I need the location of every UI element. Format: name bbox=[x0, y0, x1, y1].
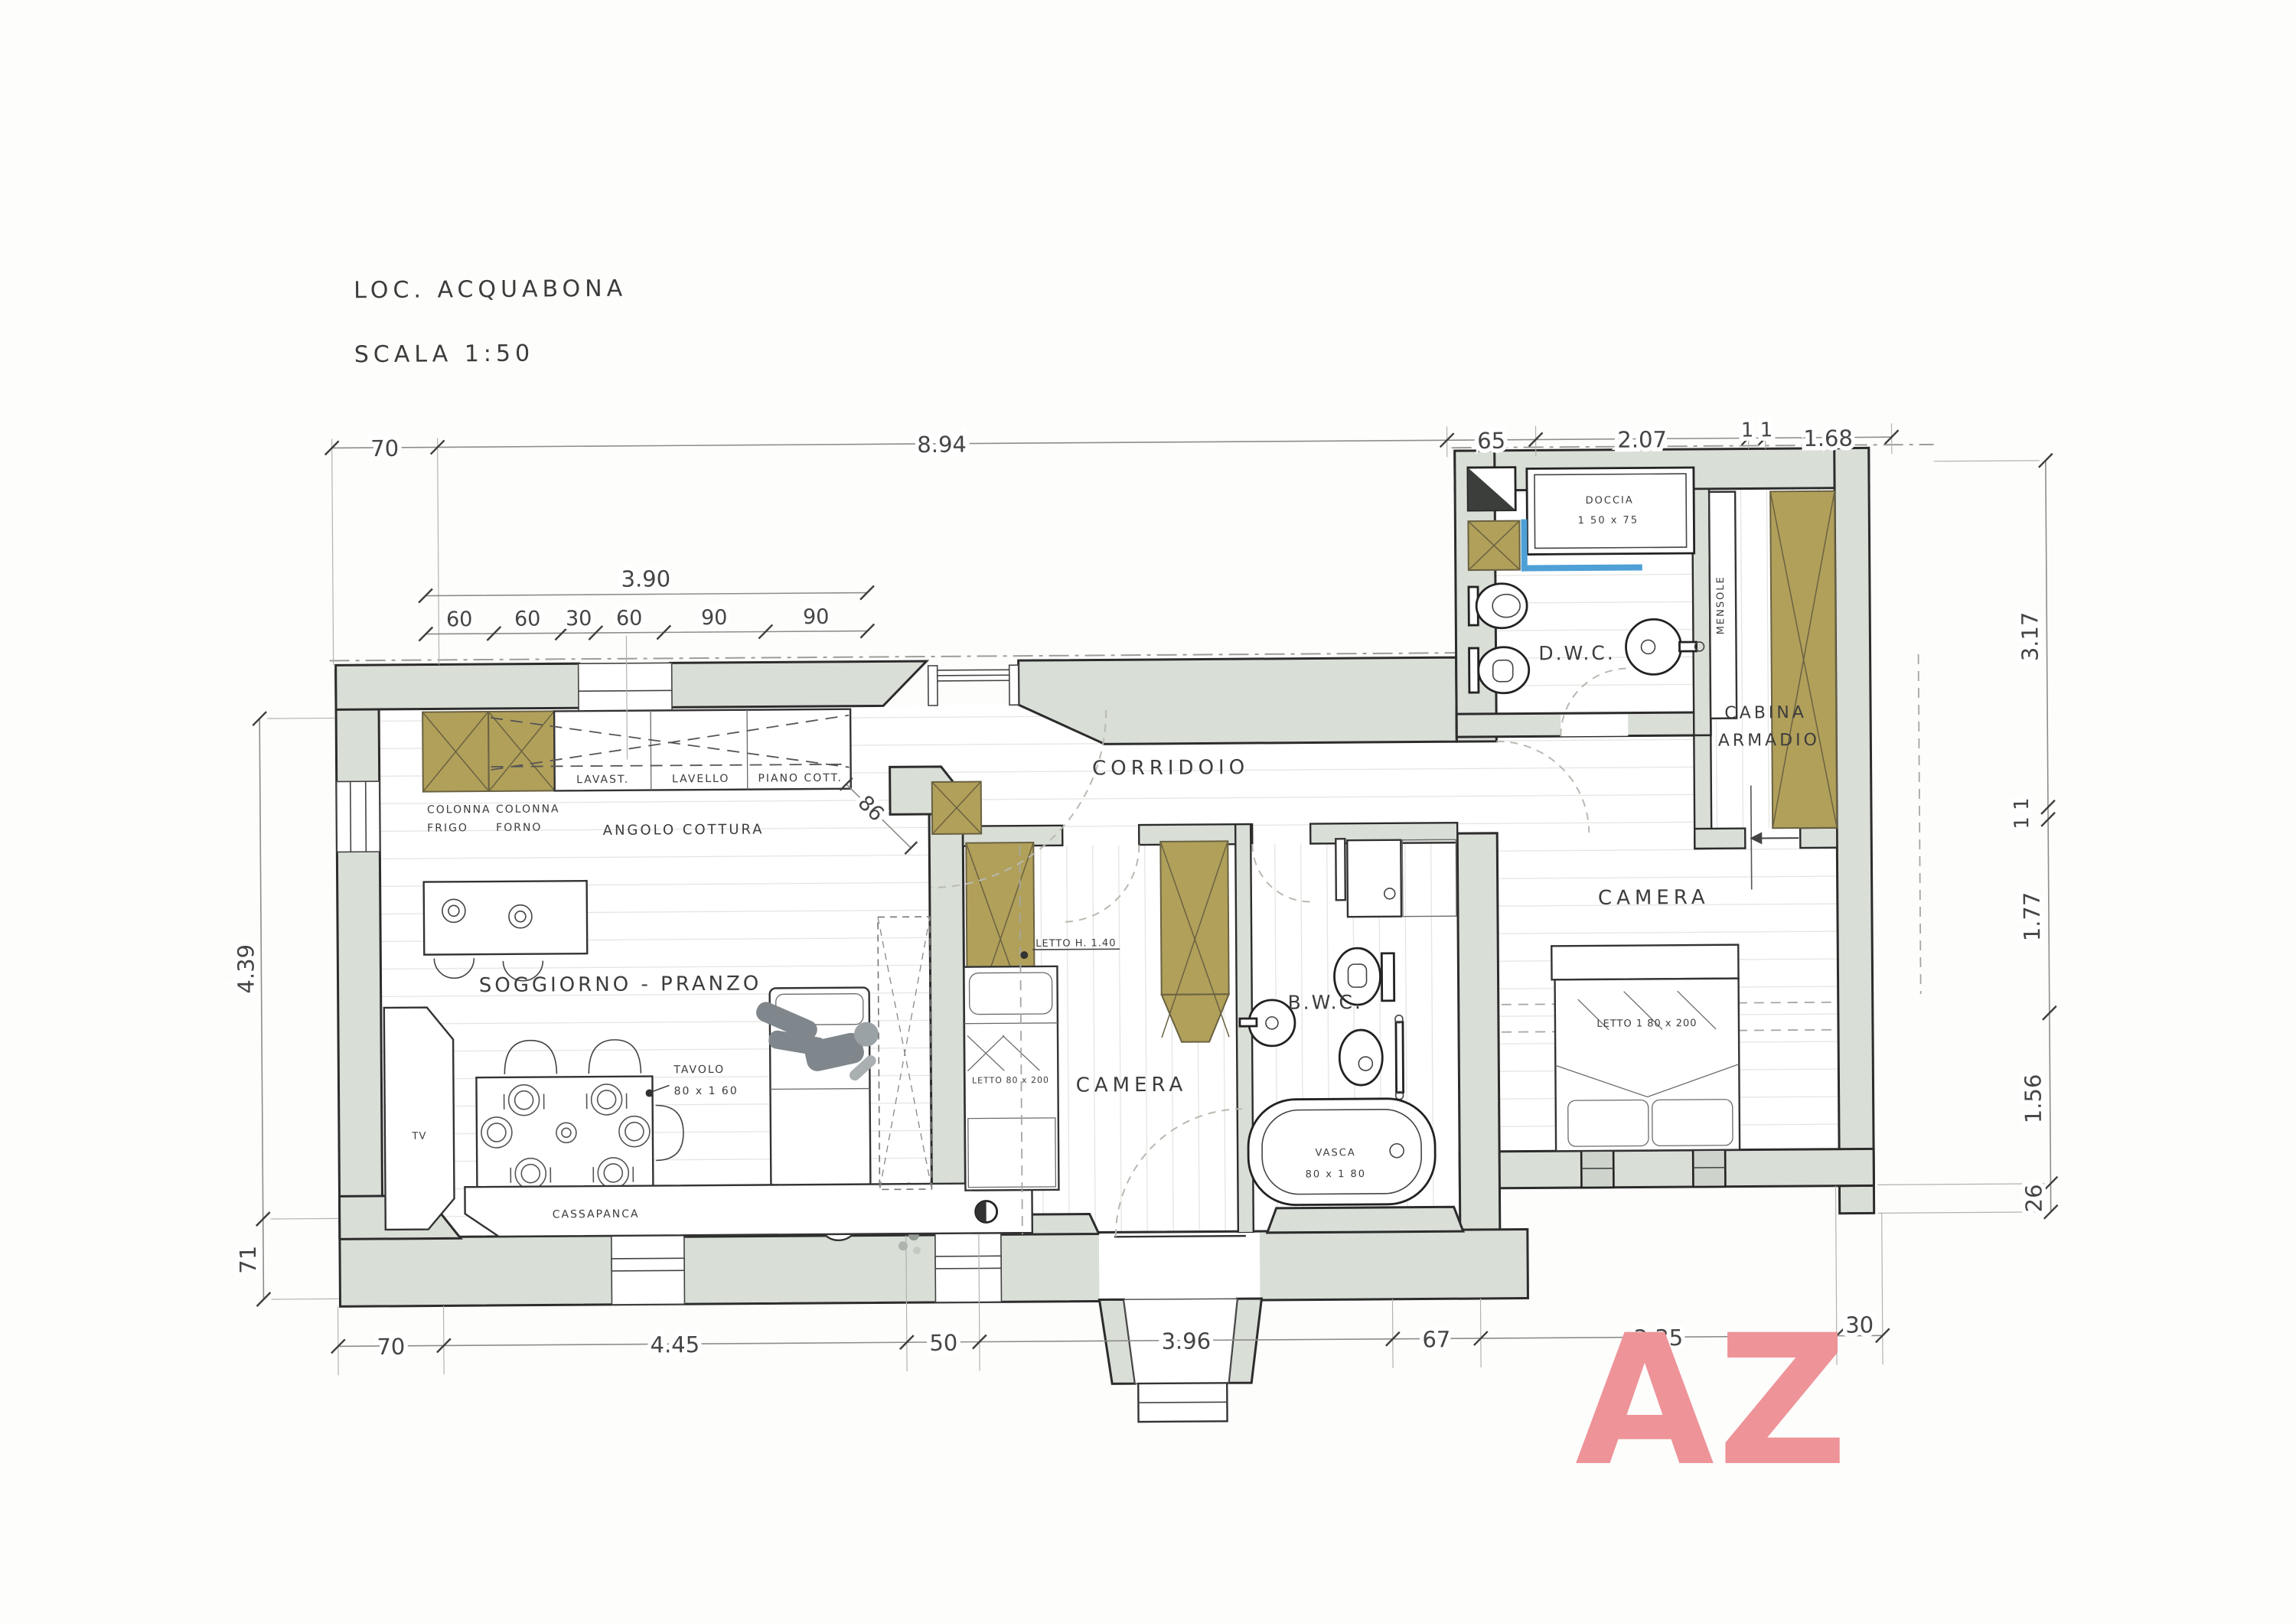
dim-kitchen-part-5: 90 bbox=[803, 605, 830, 629]
dim-right-0: 3.17 bbox=[2017, 612, 2043, 662]
dim-right-1: 1 1 bbox=[2011, 797, 2033, 829]
dim-kitchen-part-1: 60 bbox=[514, 608, 541, 631]
wall-corridor-top bbox=[1019, 657, 1457, 745]
dim-top-0: 70 bbox=[370, 435, 399, 461]
room-label-bwc: B.W.C. bbox=[1287, 991, 1363, 1014]
wall-right-block-bottom bbox=[1459, 1149, 1874, 1188]
dim-bottom-0: 70 bbox=[377, 1334, 405, 1360]
entrance-opening bbox=[1099, 1233, 1261, 1299]
label-doccia-1: DOCCIA bbox=[1586, 495, 1634, 507]
window-bottom-b bbox=[935, 1233, 1002, 1302]
dim-bottom-4: 67 bbox=[1422, 1326, 1450, 1352]
bidet bbox=[1339, 1030, 1383, 1085]
label-vasca-2: 80 x 1 80 bbox=[1306, 1168, 1367, 1181]
dim-kitchen-part-0: 60 bbox=[446, 608, 473, 631]
wall-right-block-right bbox=[1835, 448, 1874, 1185]
window-corridor-entry bbox=[928, 665, 1019, 706]
tv-cabinet bbox=[384, 1007, 455, 1230]
window-camera2-a bbox=[1581, 1149, 1613, 1188]
label-mensole: MENSOLE bbox=[1715, 575, 1727, 634]
label-cassapanca: CASSAPANCA bbox=[553, 1208, 640, 1221]
plan-title: LOC. ACQUABONA bbox=[354, 275, 627, 304]
door-gap-dwc bbox=[1561, 715, 1628, 737]
colonna-forno-box bbox=[488, 711, 555, 791]
wall-top-a bbox=[336, 663, 579, 709]
window-left-wall bbox=[337, 781, 380, 852]
dim-top-3: 2.07 bbox=[1617, 426, 1667, 452]
shower-wall-blue-v bbox=[1521, 520, 1527, 572]
label-colonna-frigo-2: FRIGO bbox=[427, 822, 468, 834]
dim-bottom-3: 3.96 bbox=[1161, 1328, 1211, 1354]
wardrobe-dwc-box bbox=[1468, 521, 1519, 570]
dim-top-1: 8.94 bbox=[917, 432, 967, 458]
entrance-door bbox=[1114, 1236, 1246, 1237]
colonna-frigo-box bbox=[422, 712, 489, 792]
room-label-cabina-1: CABINA bbox=[1724, 703, 1807, 723]
label-colonna-forno-1: COLONNA bbox=[496, 803, 560, 816]
floor-symbol bbox=[976, 1201, 997, 1222]
label-colonna-forno-2: FORNO bbox=[496, 822, 542, 834]
dimension-left: 4.39 71 bbox=[231, 711, 338, 1306]
label-colonna-frigo-1: COLONNA bbox=[427, 803, 491, 816]
dim-top-5: 1.68 bbox=[1803, 425, 1853, 451]
towel-rail bbox=[1395, 1015, 1404, 1100]
dim-right-3: 1.56 bbox=[2020, 1074, 2046, 1124]
room-label-angolo-cottura: ANGOLO COTTURA bbox=[603, 822, 765, 839]
label-piano-cottura: PIANO COTT. bbox=[758, 772, 843, 785]
dim-top-4: 1 1 bbox=[1741, 419, 1773, 442]
label-tavolo-1: TAVOLO bbox=[673, 1064, 725, 1076]
bwc-mirror bbox=[1336, 839, 1345, 900]
label-lavastoviglie: LAVAST. bbox=[576, 774, 629, 786]
dim-top-2: 65 bbox=[1477, 428, 1505, 454]
label-tv: TV bbox=[411, 1131, 426, 1142]
room-label-soggiorno: SOGGIORNO - PRANZO bbox=[479, 973, 762, 998]
window-bottom-a bbox=[612, 1235, 685, 1305]
wall-left-outer bbox=[336, 670, 383, 1237]
dining-table bbox=[476, 1077, 653, 1190]
label-doccia-2: 1 50 x 75 bbox=[1578, 515, 1639, 527]
wardrobe-corner-box bbox=[932, 782, 981, 834]
letto-h-dot bbox=[1020, 951, 1028, 959]
wall-bottom-outer bbox=[340, 1230, 1528, 1307]
wall-cabina-bottom-a bbox=[1694, 829, 1745, 849]
overhang-dashed-line bbox=[1919, 654, 1921, 994]
label-tavolo-2: 80 x 1 60 bbox=[673, 1085, 738, 1098]
dim-kitchen-part-2: 30 bbox=[566, 607, 592, 631]
az-watermark: AZ bbox=[1575, 1297, 1851, 1506]
floor-plan-drawing: LOC. ACQUABONA SCALA 1:50 bbox=[0, 0, 2296, 1623]
dim-bottom-1: 4.45 bbox=[650, 1331, 700, 1357]
dwc-bidet bbox=[1469, 584, 1527, 629]
label-letto-h: LETTO H. 1.40 bbox=[1035, 937, 1116, 950]
room-label-camera2: CAMERA bbox=[1598, 886, 1710, 910]
washing-machine bbox=[1468, 468, 1515, 510]
headboard-bench bbox=[1551, 945, 1738, 980]
label-letto-matrimoniale: LETTO 1 80 x 200 bbox=[1596, 1018, 1697, 1030]
room-label-cabina-2: ARMADIO bbox=[1718, 731, 1820, 751]
double-bed bbox=[1551, 945, 1740, 1152]
shower-wall-blue-h bbox=[1521, 564, 1642, 571]
dim-left-1: 71 bbox=[235, 1246, 261, 1274]
window-camera2-b bbox=[1693, 1149, 1725, 1187]
dim-kitchen-part-4: 90 bbox=[701, 606, 728, 630]
room-label-dwc: D.W.C. bbox=[1538, 642, 1616, 665]
label-letto-singolo: LETTO 80 x 200 bbox=[972, 1075, 1049, 1086]
label-vasca-1: VASCA bbox=[1315, 1147, 1355, 1159]
wardrobe-cabina bbox=[1770, 491, 1837, 829]
wall-bottom-pier-right bbox=[1267, 1207, 1463, 1233]
wall-cabina-bottom-b bbox=[1800, 828, 1837, 848]
floor-plan-page: LOC. ACQUABONA SCALA 1:50 bbox=[0, 0, 2296, 1623]
plan-scale: SCALA 1:50 bbox=[354, 341, 535, 369]
dwc-toilet bbox=[1469, 647, 1529, 694]
bwc-cabinet bbox=[1347, 840, 1401, 917]
dimension-right: 3.17 1 1 1.77 1.56 26 bbox=[1873, 454, 2058, 1221]
entrance-porch bbox=[1099, 1233, 1263, 1422]
wardrobe-camera1-b bbox=[1160, 841, 1229, 1042]
room-label-camera1: CAMERA bbox=[1076, 1074, 1188, 1097]
dim-left-0: 4.39 bbox=[233, 944, 259, 994]
dim-right-4: 26 bbox=[2020, 1184, 2047, 1212]
wall-right-block-step bbox=[1839, 1185, 1874, 1213]
dim-right-2: 1.77 bbox=[2019, 892, 2045, 942]
room-label-corridoio: CORRIDOIO bbox=[1092, 756, 1249, 780]
wall-right-block-left-lower bbox=[1457, 833, 1500, 1231]
wall-top-b bbox=[670, 661, 927, 707]
tavolo-leader-dot bbox=[646, 1090, 654, 1097]
wall-camera1-left bbox=[929, 814, 966, 1235]
dim-kitchen-part-3: 60 bbox=[616, 607, 643, 631]
dim-bottom-2: 50 bbox=[929, 1330, 957, 1356]
person-head bbox=[854, 1022, 879, 1046]
dim-kitchen-total: 3.90 bbox=[621, 565, 670, 592]
cassapanca-bench bbox=[465, 1183, 1032, 1237]
label-lavello: LAVELLO bbox=[672, 773, 729, 786]
